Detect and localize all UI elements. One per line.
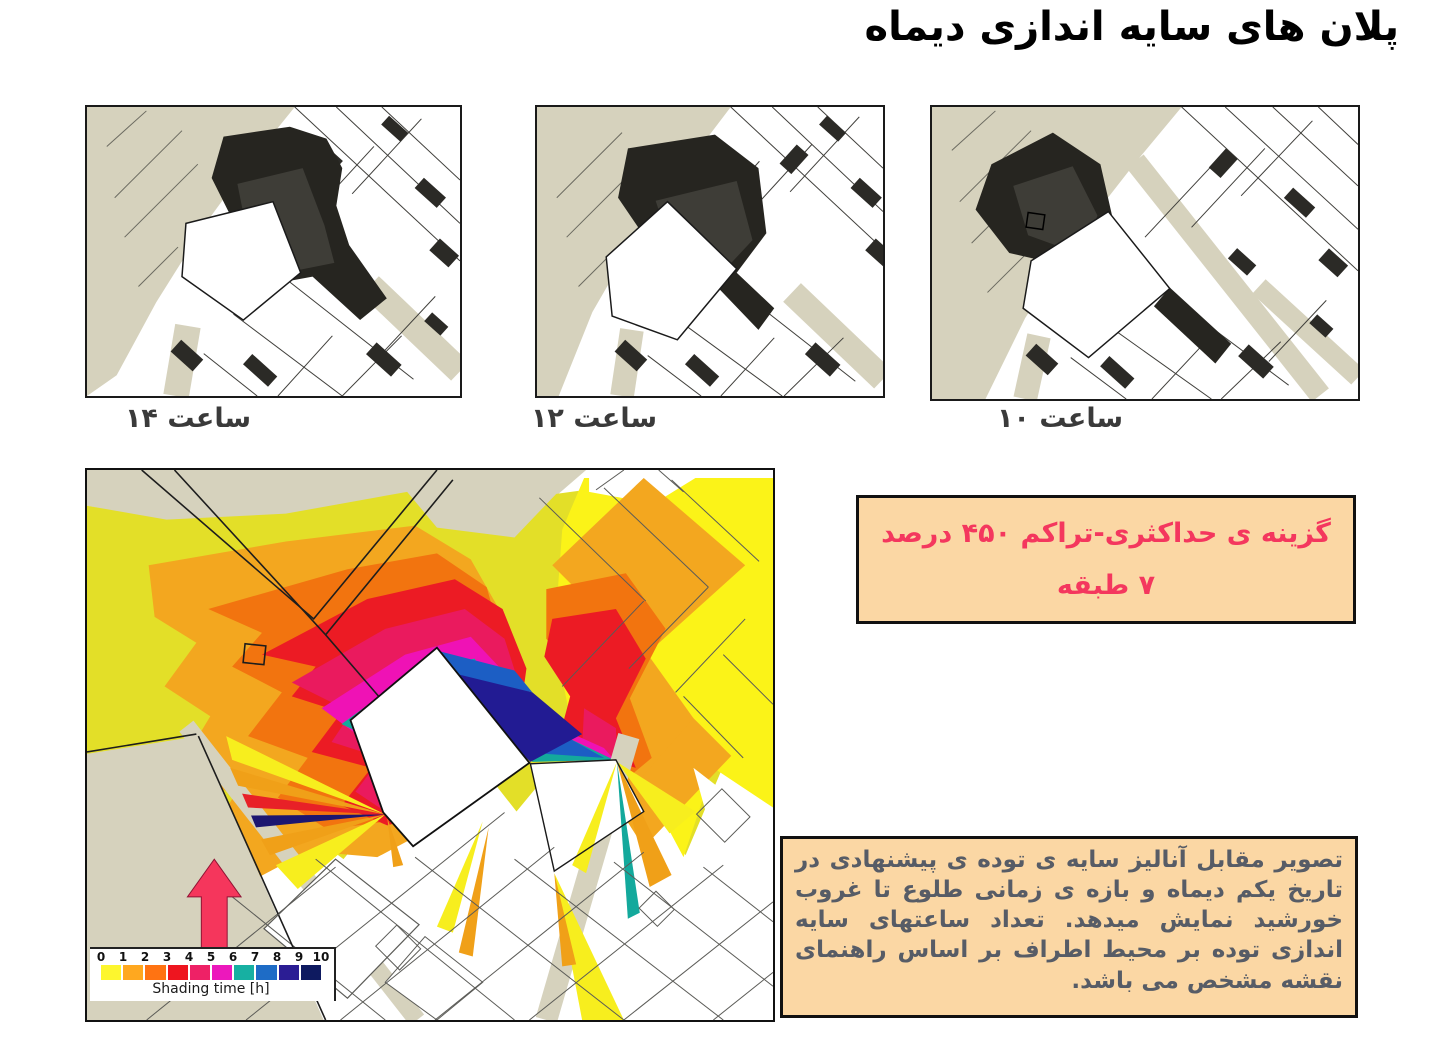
legend-swatch [145,965,165,980]
map-hour12-drawing [537,107,883,396]
legend-ticks: 012345678910 [101,950,321,965]
option-info-box: گزینه ی حداکثری-تراکم ۴۵۰ درصد ۷ طبقه [856,495,1356,624]
legend-tick: 5 [207,950,215,964]
legend-swatch [234,965,254,980]
legend-swatches [101,965,321,980]
shadow-plan-map-hour10 [930,105,1360,401]
legend-tick: 7 [251,950,259,964]
legend-title: Shading time [h] [96,981,326,997]
caption-hour10: ساعت ۱۰ [960,403,1160,434]
page-title: پلان های سایه اندازی دیماه [864,4,1399,50]
option-line-density: گزینه ی حداکثری-تراکم ۴۵۰ درصد [859,518,1353,549]
legend-tick: 1 [119,950,127,964]
legend-tick: 0 [97,950,105,964]
map-hour14-drawing [87,107,460,396]
legend-tick: 9 [295,950,303,964]
caption-hour14: ساعت ۱۴ [88,403,288,434]
legend-tick: 2 [141,950,149,964]
legend-tick: 8 [273,950,281,964]
option-line-floors: ۷ طبقه [859,570,1353,601]
legend-swatch [279,965,299,980]
legend-swatch [212,965,232,980]
legend-swatch [301,965,321,980]
shadow-plan-map-hour14 [85,105,462,398]
legend-swatch [256,965,276,980]
legend-swatch [168,965,188,980]
legend-swatch [123,965,143,980]
caption-hour12: ساعت ۱۲ [494,403,694,434]
legend-tick: 10 [313,950,330,964]
shading-analysis-map: شمال 012345678910 Shading time [h] [85,468,775,1022]
legend-tick: 4 [185,950,193,964]
map-hour10-drawing [932,107,1358,399]
description-box: تصویر مقابل آنالیز سایه ی توده ی پیشنهاد… [780,836,1358,1018]
shadow-plan-map-hour12 [535,105,885,398]
legend-tick: 3 [163,950,171,964]
page: پلان های سایه اندازی دیماه [0,0,1441,1040]
shading-legend: 012345678910 Shading time [h] [90,947,336,1001]
legend-swatch [101,965,121,980]
shading-analysis-drawing: شمال [87,470,773,1020]
legend-swatch [190,965,210,980]
legend-tick: 6 [229,950,237,964]
